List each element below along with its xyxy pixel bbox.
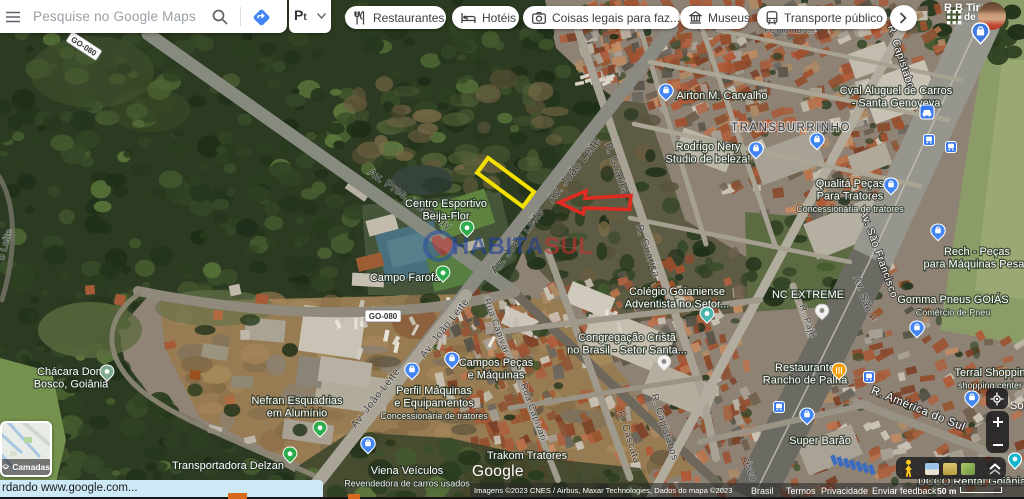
svg-text:e Máquinas: e Máquinas: [468, 370, 525, 382]
svg-text:Transportadora Delzan: Transportadora Delzan: [172, 460, 284, 472]
svg-text:em Alumínio: em Alumínio: [267, 408, 328, 420]
svg-text:TRANSBURRINHO: TRANSBURRINHO: [731, 122, 851, 134]
svg-text:Adventista no Setor...: Adventista no Setor...: [625, 299, 730, 311]
svg-text:NC EXTREME: NC EXTREME: [772, 289, 844, 301]
svg-text:Concessionária de tratores: Concessionária de tratores: [796, 204, 904, 214]
svg-text:Airton M. Carvalho: Airton M. Carvalho: [676, 90, 767, 102]
svg-text:Chácara Dom: Chácara Dom: [37, 366, 105, 378]
svg-text:Qualitá Peças: Qualitá Peças: [816, 178, 885, 190]
svg-text:Rodrigo Nery: Rodrigo Nery: [676, 141, 741, 153]
svg-text:Gomma Pneus GOIÁS: Gomma Pneus GOIÁS: [897, 293, 1008, 306]
svg-text:Concessionária de tratores: Concessionária de tratores: [380, 411, 488, 421]
svg-text:Perfil Máquinas: Perfil Máquinas: [396, 385, 472, 397]
svg-text:Rech - Peças: Rech - Peças: [944, 246, 1011, 258]
svg-text:Nefran Esquadrias: Nefran Esquadrias: [251, 395, 343, 407]
svg-text:Bosco, Goiânia: Bosco, Goiânia: [34, 379, 109, 391]
svg-text:Studio de beleza!: Studio de beleza!: [665, 154, 750, 166]
svg-text:e Equipamentos: e Equipamentos: [394, 398, 474, 410]
svg-text:Terral Shoppin: Terral Shoppin: [955, 367, 1024, 379]
svg-text:Comércio de Pneu: Comércio de Pneu: [916, 308, 991, 318]
svg-text:para Máquinas Pesad: para Máquinas Pesad: [923, 259, 1024, 271]
svg-text:Beija-Flor: Beija-Flor: [422, 211, 469, 223]
svg-text:GO-080: GO-080: [369, 312, 398, 321]
svg-text:Restaurante: Restaurante: [775, 362, 835, 374]
svg-text:Para Tratores: Para Tratores: [817, 191, 884, 203]
svg-text:Trakom Tratores: Trakom Tratores: [487, 450, 568, 462]
svg-text:Cval Aluguel de Carros: Cval Aluguel de Carros: [840, 85, 953, 97]
svg-text:Campo Farofa: Campo Farofa: [370, 272, 441, 284]
svg-text:Viena Veículos: Viena Veículos: [371, 465, 444, 477]
svg-text:no Brasil - Setor Santa...: no Brasil - Setor Santa...: [567, 345, 687, 357]
svg-text:Colégio Goianiense: Colégio Goianiense: [629, 286, 725, 298]
svg-text:Campos Peças: Campos Peças: [459, 357, 534, 369]
svg-text:HABITASUL: HABITASUL: [452, 233, 593, 260]
svg-text:Super Barão: Super Barão: [789, 435, 851, 447]
svg-text:Congregação Cristã: Congregação Cristã: [578, 332, 677, 344]
svg-text:Centro Esportivo: Centro Esportivo: [405, 198, 487, 210]
svg-text:Revendedora de carros usados: Revendedora de carros usados: [344, 479, 470, 489]
